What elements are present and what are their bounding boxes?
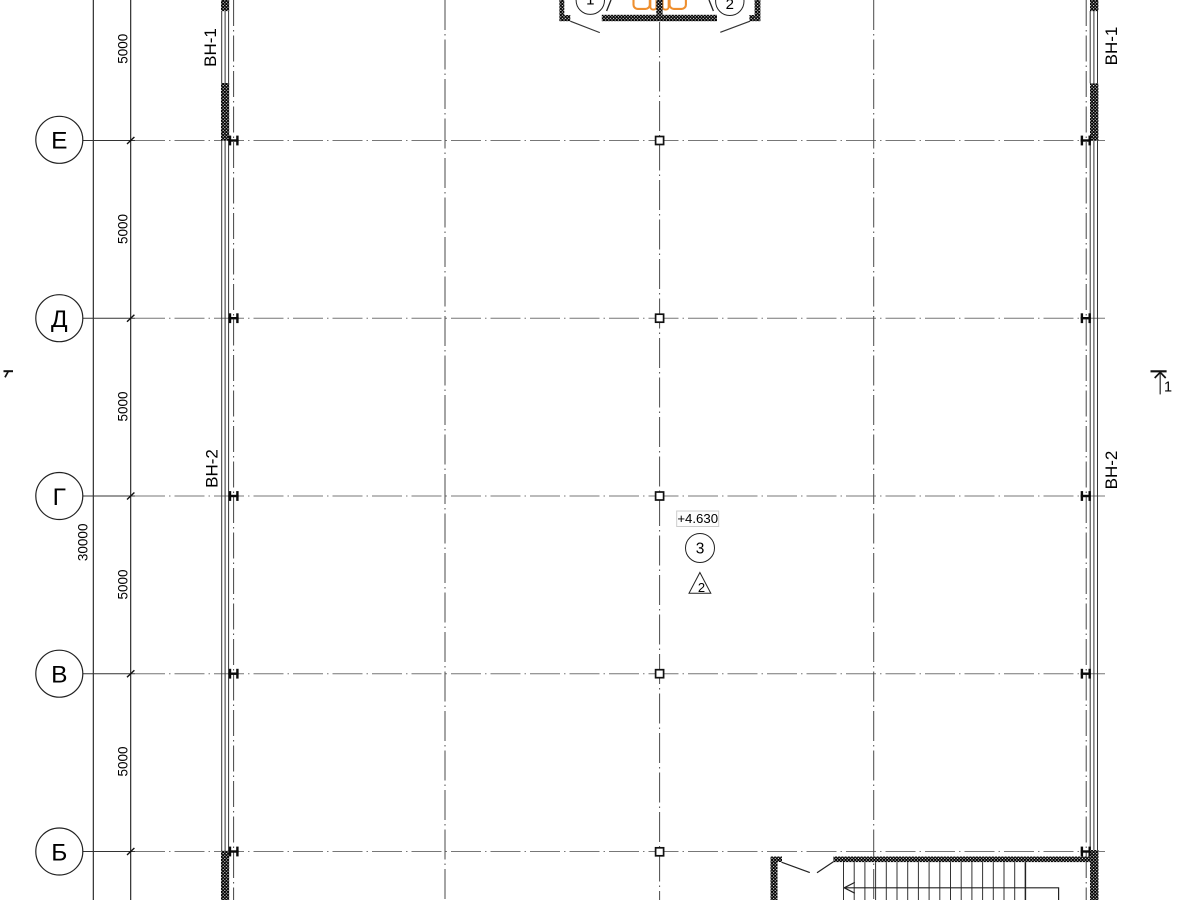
- svg-text:ВН-2: ВН-2: [203, 449, 222, 488]
- svg-text:Г: Г: [53, 484, 66, 511]
- svg-text:1: 1: [1164, 380, 1172, 396]
- svg-text:ВН-1: ВН-1: [1102, 27, 1121, 66]
- svg-text:ВН-1: ВН-1: [201, 28, 220, 67]
- svg-text:5000: 5000: [116, 569, 131, 599]
- svg-text:ВН-2: ВН-2: [1102, 451, 1121, 490]
- svg-text:2: 2: [698, 580, 705, 595]
- svg-text:5000: 5000: [116, 214, 131, 244]
- svg-text:Б: Б: [51, 839, 67, 866]
- svg-text:30000: 30000: [76, 524, 91, 562]
- svg-text:Е: Е: [51, 128, 67, 155]
- svg-text:2: 2: [726, 0, 734, 13]
- svg-text:3: 3: [696, 541, 705, 558]
- svg-text:5000: 5000: [116, 34, 131, 64]
- svg-text:Д: Д: [51, 306, 68, 333]
- svg-text:+4.630: +4.630: [677, 511, 718, 526]
- svg-text:В: В: [51, 662, 67, 689]
- svg-text:1: 1: [586, 0, 594, 9]
- svg-text:5000: 5000: [116, 391, 131, 421]
- svg-text:5000: 5000: [116, 746, 131, 776]
